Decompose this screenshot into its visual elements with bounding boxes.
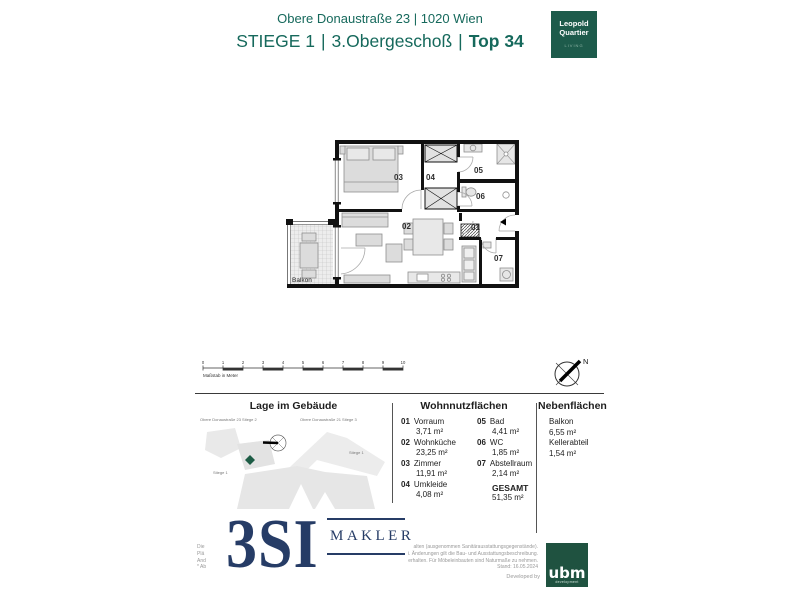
balcony-chair bbox=[302, 233, 316, 241]
side-area-name: Balkon bbox=[549, 417, 609, 428]
area-num: 02 bbox=[401, 438, 410, 447]
area-num: 04 bbox=[401, 480, 410, 489]
leopold-quartier-logo: Leopold Quartier LIVING bbox=[551, 11, 597, 58]
side-areas-title: Nebenflächen bbox=[538, 400, 604, 412]
area-value: 2,14 m² bbox=[492, 469, 572, 479]
area-value: 4,08 m² bbox=[416, 490, 496, 500]
area-total: GESAMT 51,35 m² bbox=[492, 483, 587, 503]
dining-table bbox=[413, 219, 443, 255]
scale-tick: 1 bbox=[222, 360, 225, 365]
area-name: Umkleide bbox=[414, 480, 447, 489]
total-label: GESAMT bbox=[492, 483, 587, 493]
header-stiege: STIEGE 1 bbox=[236, 31, 315, 51]
room-label-01: 01 bbox=[471, 223, 480, 232]
fineprint-left: Die Plä And * Ab bbox=[197, 544, 206, 571]
area-entry: 04Umkleide 4,08 m² bbox=[401, 480, 496, 500]
area-num: 01 bbox=[401, 417, 410, 426]
pillow bbox=[347, 148, 369, 160]
scale-tick: 10 bbox=[401, 360, 406, 365]
area-num: 03 bbox=[401, 459, 410, 468]
site-plan-title: Lage im Gebäude bbox=[206, 400, 381, 412]
header-address: Obere Donaustraße 23 | 1020 Wien bbox=[180, 11, 580, 26]
fineprint-line: i. Änderungen gilt die Bau- und Ausstatt… bbox=[320, 551, 538, 558]
areas-title: Wohnnutzflächen bbox=[398, 400, 530, 412]
chair bbox=[404, 239, 413, 250]
fineprint-line: Plä bbox=[197, 551, 206, 558]
room-label-02: 02 bbox=[402, 222, 411, 231]
scale-tick: 2 bbox=[242, 360, 245, 365]
site-plan-map: Obere Donaustraße 23 Stiege 2 Obere Dona… bbox=[197, 414, 389, 510]
header-separator-1: | bbox=[321, 31, 326, 51]
scale-tick: 5 bbox=[302, 360, 305, 365]
area-num: 05 bbox=[477, 417, 486, 426]
area-entry: 07Abstellraum 2,14 m² bbox=[477, 459, 572, 479]
scale-label: Maßstab in Meter bbox=[203, 373, 239, 378]
leopold-logo-line3: LIVING bbox=[564, 43, 583, 48]
fineprint-line: alten (ausgenommen Sanitärausstattungsge… bbox=[320, 544, 538, 551]
site-stiege-label-b: Stiege 1 bbox=[213, 470, 228, 475]
scale-tick: 4 bbox=[282, 360, 285, 365]
balcony-corner-block bbox=[286, 219, 293, 225]
header-floor: 3.Obergeschoß bbox=[332, 31, 453, 51]
ubm-logo-name: ubm bbox=[548, 566, 585, 580]
area-name: Zimmer bbox=[414, 459, 441, 468]
area-name: WC bbox=[490, 438, 503, 447]
section-divider bbox=[195, 393, 604, 394]
total-value: 51,35 m² bbox=[492, 493, 587, 503]
leopold-logo-line2: Quartier bbox=[559, 29, 588, 38]
nightstand bbox=[340, 146, 345, 154]
pillow bbox=[373, 148, 395, 160]
area-name: Wohnküche bbox=[414, 438, 456, 447]
scale-tick: 7 bbox=[342, 360, 345, 365]
fineprint-line: Stand: 16.05.2024 bbox=[320, 564, 538, 571]
3si-logo: 3SI bbox=[226, 510, 319, 579]
scale-tick: 6 bbox=[322, 360, 325, 365]
sideboard bbox=[344, 275, 390, 283]
floor-plan: 03 04 05 06 01 02 07 Balkon bbox=[278, 126, 528, 316]
fineprint-right: alten (ausgenommen Sanitärausstattungsge… bbox=[320, 544, 538, 571]
fineprint-line: And bbox=[197, 558, 206, 565]
area-name: Vorraum bbox=[414, 417, 444, 426]
site-label-left: Obere Donaustraße 23 Stiege 2 bbox=[200, 417, 257, 422]
side-areas-list: Balkon 6,55 m² Kellerabteil 1,54 m² bbox=[549, 417, 609, 459]
room-label-03: 03 bbox=[394, 173, 403, 182]
room-label-05: 05 bbox=[474, 166, 483, 175]
nightstand bbox=[398, 146, 403, 154]
sofa bbox=[342, 213, 388, 227]
chair bbox=[444, 239, 453, 250]
balkon-label: Balkon bbox=[292, 277, 312, 284]
scale-tick: 8 bbox=[362, 360, 365, 365]
site-label-right: Obere Donaustraße 21 Stiege 3 bbox=[300, 417, 357, 422]
area-name: Abstellraum bbox=[490, 459, 532, 468]
area-num: 07 bbox=[477, 459, 486, 468]
kitchen-sink bbox=[417, 274, 428, 281]
header-subtitle: STIEGE 1|3.Obergeschoß|Top 34 bbox=[180, 31, 580, 52]
column-divider-left bbox=[392, 403, 393, 503]
header-separator-2: | bbox=[458, 31, 463, 51]
ubm-logo: ubm development bbox=[546, 543, 588, 587]
area-name: Bad bbox=[490, 417, 504, 426]
armchair bbox=[386, 244, 402, 262]
scale-bar: 0 1 2 3 4 5 6 7 8 9 10 Maßstab in Meter bbox=[195, 358, 410, 386]
toilet-tank bbox=[462, 187, 466, 197]
wc-fixtures bbox=[462, 187, 509, 198]
entrance-arrow-icon bbox=[500, 219, 506, 226]
scale-tick: 3 bbox=[262, 360, 265, 365]
fineprint-line: Die bbox=[197, 544, 206, 551]
area-num: 06 bbox=[477, 438, 486, 447]
balcony-table bbox=[300, 243, 318, 268]
building-footprints bbox=[205, 428, 385, 509]
balcony bbox=[286, 219, 335, 284]
toilet bbox=[466, 188, 476, 196]
scale-tick: 9 bbox=[382, 360, 385, 365]
compass-north-label: N bbox=[583, 357, 588, 366]
fineprint-line: erhalten. Für Möbeleinbauten sind Naturm… bbox=[320, 558, 538, 565]
bedroom-furniture bbox=[340, 146, 403, 192]
side-area-value: 6,55 m² bbox=[549, 428, 609, 439]
header-top-number: Top 34 bbox=[469, 31, 524, 51]
kitchen-counter bbox=[408, 272, 460, 283]
room-label-04: 04 bbox=[426, 173, 435, 182]
wc-sink bbox=[503, 192, 509, 198]
bathroom-fixtures bbox=[464, 144, 515, 164]
side-area-name: Kellerabteil bbox=[549, 438, 609, 449]
room-label-06: 06 bbox=[476, 192, 485, 201]
scale-tick: 0 bbox=[202, 360, 205, 365]
balcony-corner-block bbox=[328, 219, 335, 225]
developed-by-label: Developed by bbox=[480, 574, 540, 580]
compass-icon: N bbox=[552, 350, 602, 396]
chair bbox=[444, 223, 453, 234]
side-area-value: 1,54 m² bbox=[549, 449, 609, 460]
ubm-logo-sub: development bbox=[555, 580, 578, 584]
fineprint-line: * Ab bbox=[197, 564, 206, 571]
site-stiege-label-a: Stiege 1 bbox=[349, 450, 364, 455]
washing-machine bbox=[500, 268, 513, 281]
coffee-table bbox=[356, 234, 382, 246]
room-label-07: 07 bbox=[494, 254, 503, 263]
